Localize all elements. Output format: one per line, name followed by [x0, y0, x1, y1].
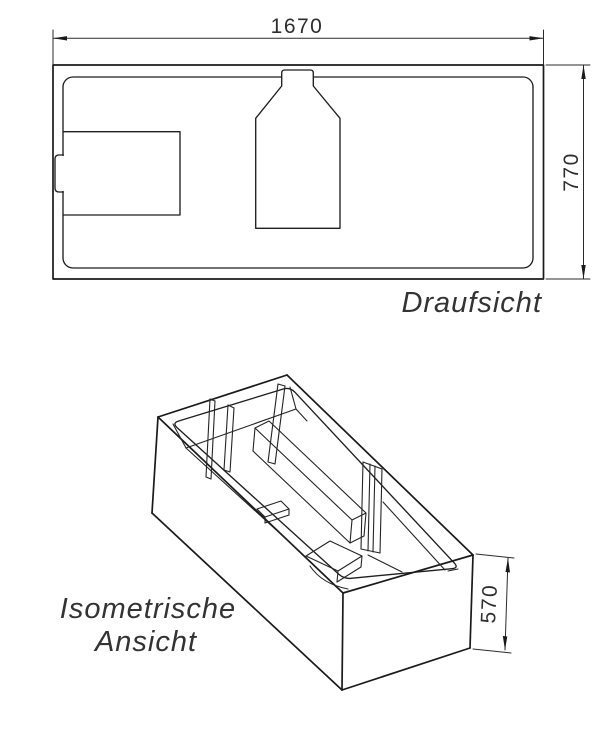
iso-outer-box	[152, 375, 473, 690]
arrow-down-icon	[503, 636, 508, 650]
top-view-bottle-plateau	[256, 70, 340, 228]
iso-view: 570 Isometrische Ansicht	[60, 375, 514, 690]
arrow-down-icon	[581, 265, 585, 279]
iso-partition-wall-right	[361, 462, 382, 553]
tab-mask	[59, 156, 67, 191]
ext-line-top	[476, 554, 514, 558]
dim-value-570: 570	[477, 583, 502, 624]
iso-view-label-line2: Ansicht	[93, 626, 198, 658]
arrow-up-icon	[506, 558, 511, 573]
dim-value-1670: 1670	[271, 15, 324, 38]
iso-partition-wall-left-b	[224, 405, 234, 472]
arrow-right-icon	[530, 36, 544, 40]
top-view-drain-pocket	[63, 132, 180, 215]
top-view-label: Draufsicht	[401, 287, 542, 319]
dim-value-770: 770	[560, 152, 583, 192]
iso-view-label-line1: Isometrische	[60, 593, 236, 625]
iso-partition-wall-back	[268, 384, 285, 464]
arrow-up-icon	[581, 65, 585, 79]
technical-drawing-page: 1670 770 Draufsicht	[0, 0, 614, 729]
dimension-1670: 1670	[53, 15, 544, 64]
dimension-570: 570	[473, 554, 514, 653]
arrow-left-icon	[53, 36, 67, 40]
top-view: 1670 770 Draufsicht	[53, 15, 590, 319]
dimension-770: 770	[546, 65, 590, 279]
drawing-canvas: 1670 770 Draufsicht	[0, 0, 614, 729]
iso-drain-wedge	[306, 541, 402, 589]
